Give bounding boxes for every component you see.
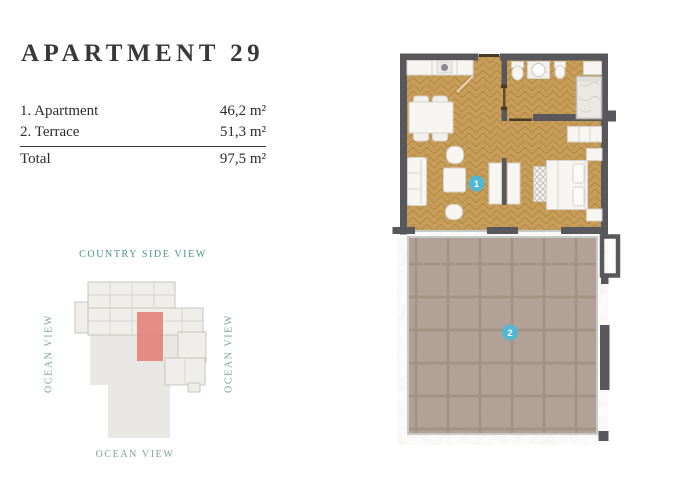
room-badge-apartment: 1	[469, 176, 485, 192]
bathroom-door	[503, 88, 506, 110]
bidet	[555, 62, 566, 79]
wardrobe	[568, 127, 602, 143]
washbasin	[528, 62, 550, 79]
bench-rug	[534, 167, 548, 202]
room-badge-terrace: 2	[502, 325, 518, 341]
shower	[577, 77, 602, 119]
tv-partition	[489, 158, 520, 205]
badge-number: 2	[507, 328, 512, 339]
nightstand-bottom	[587, 209, 603, 221]
bed	[547, 161, 588, 210]
coffee-table	[444, 168, 466, 192]
dining-table	[409, 102, 453, 133]
bathroom-cabinet	[584, 62, 602, 75]
sofa	[408, 158, 427, 206]
toilet	[512, 62, 524, 81]
armchair-top	[447, 147, 464, 164]
entrance-door	[479, 54, 500, 57]
apartment-brochure-page: APARTMENT 29 1. Apartment 46,2 m² 2. Ter…	[0, 0, 700, 500]
kitchen-counter	[407, 61, 473, 76]
badge-number: 1	[474, 179, 480, 190]
nightstand-top	[587, 149, 603, 161]
terrace-floor	[407, 236, 598, 435]
bedroom-door	[509, 119, 532, 122]
terrace-frame-wall	[602, 237, 618, 276]
floor-plan: 1 2	[0, 0, 700, 500]
armchair-bottom	[446, 205, 463, 220]
